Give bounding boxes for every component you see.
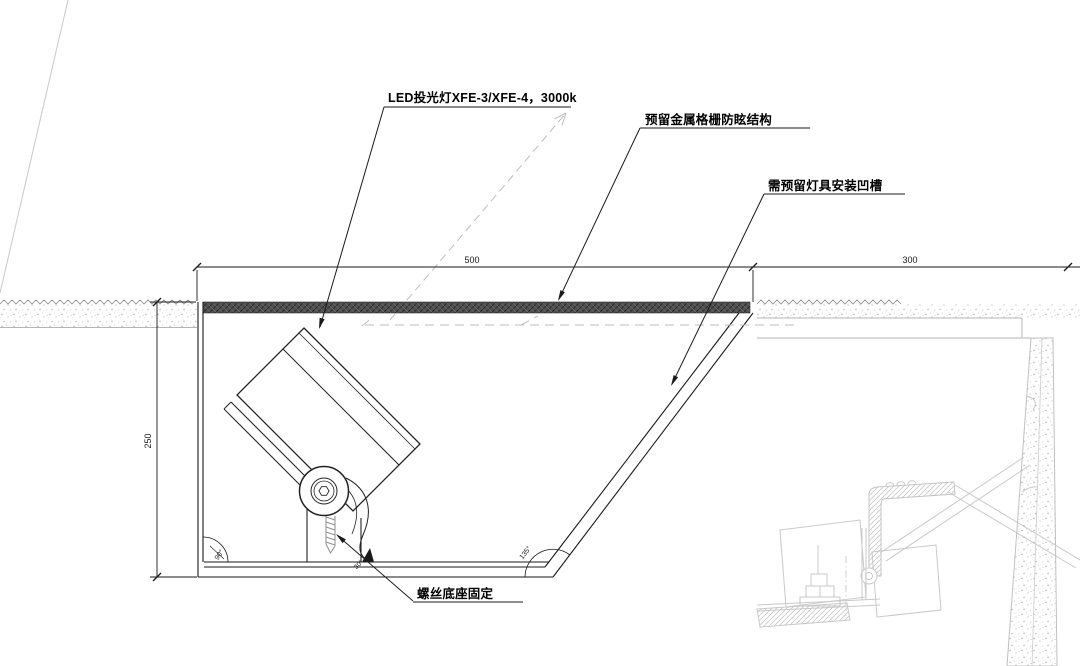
underlay-panel: [780, 520, 866, 607]
screw-label-leader: [338, 536, 413, 601]
underlay-bolt-stack: [800, 545, 840, 606]
underlay-pivot: [861, 568, 877, 584]
underlay-panel: [872, 545, 941, 617]
lighting-detail-drawing: 500 300 250 90° 135° 30°: [0, 0, 1080, 666]
recess-diagonal-outer: [553, 313, 753, 577]
reserved-plane-ghost: [362, 316, 795, 326]
dimension-250: 250: [143, 433, 153, 448]
lamp-knuckle: [300, 467, 349, 516]
angle-90-label: 90°: [213, 548, 226, 561]
screw-label: 螺丝底座固定: [417, 586, 494, 601]
arrowhead-icon: [558, 290, 565, 301]
fixing-screw: [326, 514, 335, 553]
concrete-column: [1007, 338, 1057, 666]
arrowhead-icon: [319, 318, 325, 329]
angle-wedge-30: [362, 548, 374, 562]
ceiling-plaster-band: [0, 304, 197, 327]
underlay-angle-bracket: [869, 482, 955, 576]
arrowhead-icon: [671, 375, 678, 386]
cad-drawing-canvas: 500 300 250 90° 135° 30°: [0, 0, 1080, 666]
recess-diagonal-inner: [545, 313, 739, 567]
angle-135-label: 135°: [518, 544, 533, 561]
beam-dashed-line: [390, 113, 566, 320]
led-floodlight-fixture: [224, 328, 420, 562]
slab-stipple-band: [757, 304, 1080, 318]
dimension-300: 300: [902, 255, 917, 265]
lamp-label-leader: [320, 107, 384, 327]
grille-label-leader: [559, 128, 640, 299]
dimension-500: 500: [464, 255, 479, 265]
angle-annotations: [203, 537, 570, 577]
beam-direction: [390, 113, 566, 320]
metal-grille-band: [203, 302, 750, 313]
underlay-hatch-strip: [757, 603, 850, 627]
grille-label: 预留金属格栅防眩结构: [645, 112, 772, 127]
groove-label: 需预留灯具安装凹槽: [768, 178, 883, 193]
underlay-diagonal-line: [0, 0, 68, 293]
groove-label-leader: [672, 194, 764, 384]
lamp-label: LED投光灯XFE-3/XFE-4，3000k: [388, 90, 577, 105]
ceiling-finish-zigzag-right: [757, 300, 901, 304]
ceiling-left: [0, 299, 197, 328]
